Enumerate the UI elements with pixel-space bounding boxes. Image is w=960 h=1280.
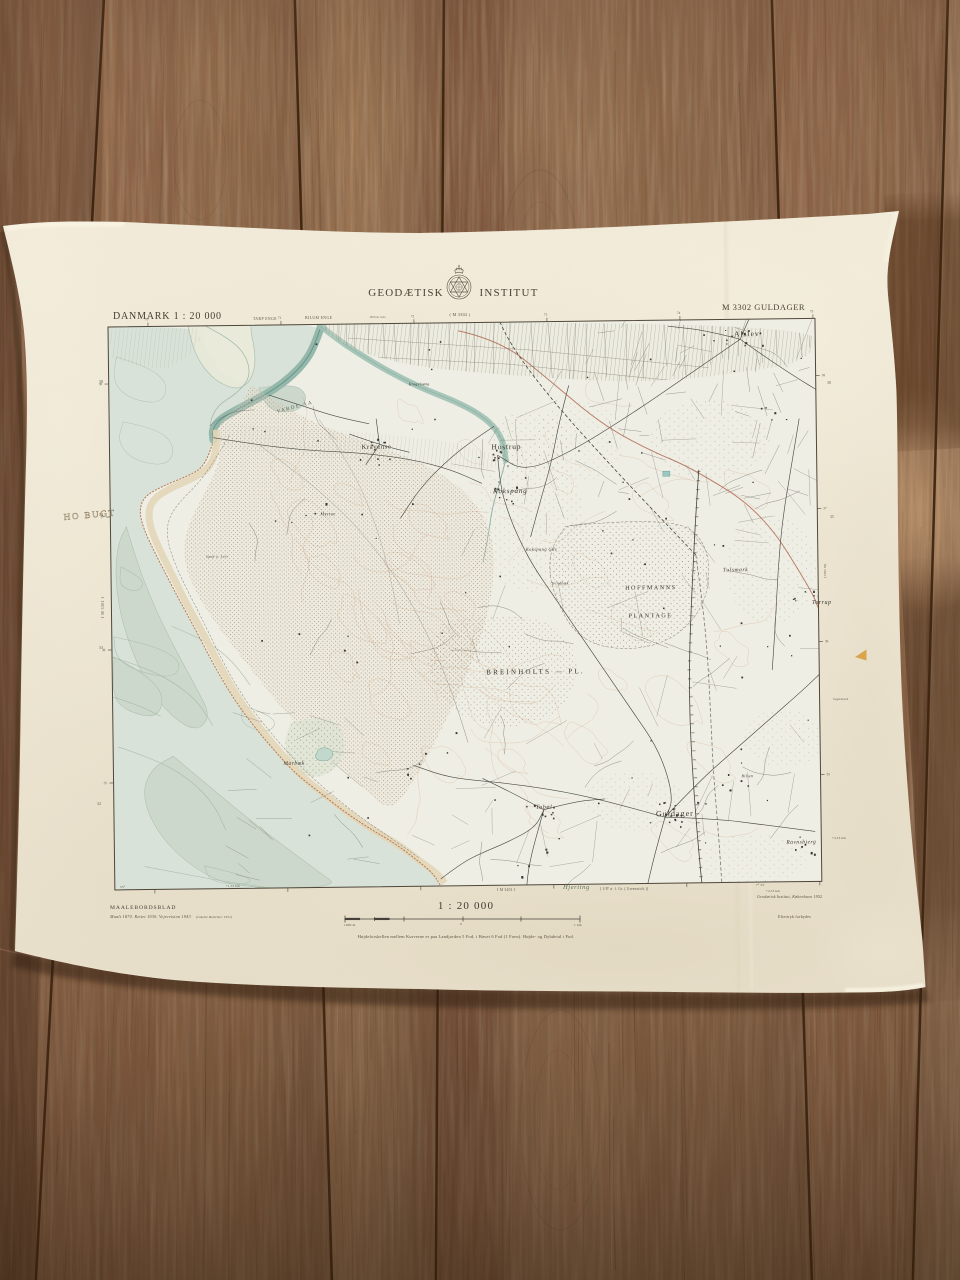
svg-text:Bilsen: Bilsen xyxy=(741,773,753,778)
svg-text:33: 33 xyxy=(99,646,103,650)
svg-text:Alslev: Alslev xyxy=(734,329,760,338)
svg-text:Sand o. Leer: Sand o. Leer xyxy=(206,555,229,559)
svg-text:71: 71 xyxy=(278,316,282,320)
svg-text:Guldager: Guldager xyxy=(656,809,694,818)
svg-text:BREINHOLTS — PL.: BREINHOLTS — PL. xyxy=(486,667,585,676)
svg-text:Torrup: Torrup xyxy=(812,600,831,606)
svg-text:1 : 20 000: 1 : 20 000 xyxy=(438,900,494,912)
svg-text:75: 75 xyxy=(810,309,814,313)
svg-text:Tulsmark: Tulsmark xyxy=(723,567,748,573)
svg-text:GEODÆTISK: GEODÆTISK xyxy=(368,287,444,299)
svg-text:55°: 55° xyxy=(120,885,126,889)
svg-text:35: 35 xyxy=(826,772,830,776)
svg-text:72: 72 xyxy=(411,314,415,318)
svg-text:7° 55´: 7° 55´ xyxy=(756,883,766,887)
svg-text:Hostrup: Hostrup xyxy=(491,442,521,451)
svg-text:TARP ENGE: TARP ENGE xyxy=(253,317,277,321)
svg-text:Tobøl: Tobøl xyxy=(536,805,553,811)
svg-text:Myrtue: Myrtue xyxy=(319,511,335,516)
svg-text:BILUM ENGE: BILUM ENGE xyxy=(305,316,333,320)
svg-text:MAALEBORDSBLAD: MAALEBORDSBLAD xyxy=(110,905,176,911)
svg-text:Hjerting: Hjerting xyxy=(562,884,590,891)
svg-text:Sognmark: Sognmark xyxy=(833,697,849,701)
svg-text:Billum Gde: Billum Gde xyxy=(370,315,386,319)
svg-text:( 1/8° ø. f. Gr. ( Greenwich ): ( 1/8° ø. f. Gr. ( Greenwich )) xyxy=(600,887,649,891)
svg-text:Maalt 1870. Rettet 1930. Vej: Maalt 1870. Rettet 1930. Vejrevision 194… xyxy=(109,914,191,919)
svg-text:38: 38 xyxy=(827,381,831,385)
svg-text:HOFFMANNS: HOFFMANNS xyxy=(625,585,676,592)
svg-text:DANMARK 1 : 20 000: DANMARK 1 : 20 000 xyxy=(113,311,222,322)
svg-text:Kokspang: Kokspang xyxy=(492,487,528,495)
svg-text:32: 32 xyxy=(97,802,101,806)
svg-text:1000 m: 1000 m xyxy=(344,923,356,927)
svg-text:1 km: 1 km xyxy=(574,923,582,927)
svg-text:(enkelte Rettelser 1951): (enkelte Rettelser 1951) xyxy=(196,915,232,919)
svg-text:37: 37 xyxy=(823,506,827,510)
svg-text:34: 34 xyxy=(99,513,103,517)
svg-text:74: 74 xyxy=(677,311,681,315)
svg-text:Ravnsbjerg: Ravnsbjerg xyxy=(785,839,816,845)
svg-text:(1302 M): (1302 M) xyxy=(823,563,827,578)
svg-text:INSTITUT: INSTITUT xyxy=(479,287,538,299)
svg-text:38: 38 xyxy=(99,380,103,384)
svg-text:Kravense: Kravense xyxy=(361,444,391,451)
svg-text:M 3302 GULDAGER: M 3302 GULDAGER xyxy=(722,302,805,312)
svg-text:36: 36 xyxy=(825,639,829,643)
svg-text:Kokspang Gde: Kokspang Gde xyxy=(525,547,557,552)
svg-text:Eftertryk forbydes: Eftertryk forbydes xyxy=(778,914,811,919)
svg-text:( M 3302 ): ( M 3302 ) xyxy=(449,312,470,317)
svg-text:PLANTAGE: PLANTAGE xyxy=(629,613,673,620)
svg-text:35: 35 xyxy=(830,515,834,519)
svg-text:73: 73 xyxy=(544,313,548,317)
svg-text:I M 3401 I: I M 3401 I xyxy=(497,888,516,892)
svg-text:38: 38 xyxy=(822,373,826,377)
svg-text:I M 3301 I: I M 3301 I xyxy=(100,597,105,618)
svg-text:Marbæk: Marbæk xyxy=(282,761,304,767)
svg-text:Trindbæk: Trindbæk xyxy=(551,580,569,585)
svg-text:0: 0 xyxy=(460,922,462,926)
svg-text:Kragelsøng: Kragelsøng xyxy=(408,382,430,386)
svg-text:35: 35 xyxy=(104,781,108,785)
